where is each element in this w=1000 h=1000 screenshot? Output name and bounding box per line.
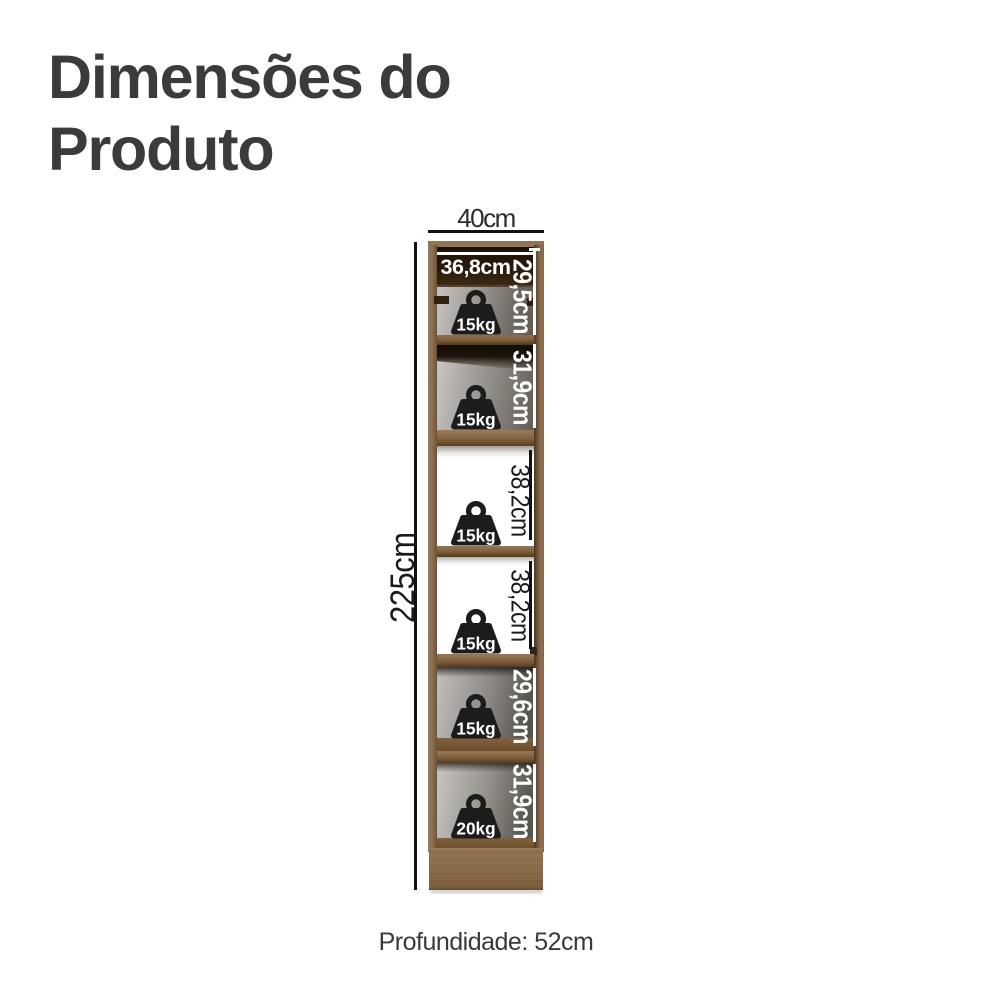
svg-text:15kg: 15kg <box>456 315 495 335</box>
svg-text:15kg: 15kg <box>456 634 495 654</box>
svg-text:15kg: 15kg <box>456 719 495 739</box>
svg-text:15kg: 15kg <box>456 526 495 546</box>
svg-text:15kg: 15kg <box>456 410 495 430</box>
svg-text:20kg: 20kg <box>456 819 495 839</box>
